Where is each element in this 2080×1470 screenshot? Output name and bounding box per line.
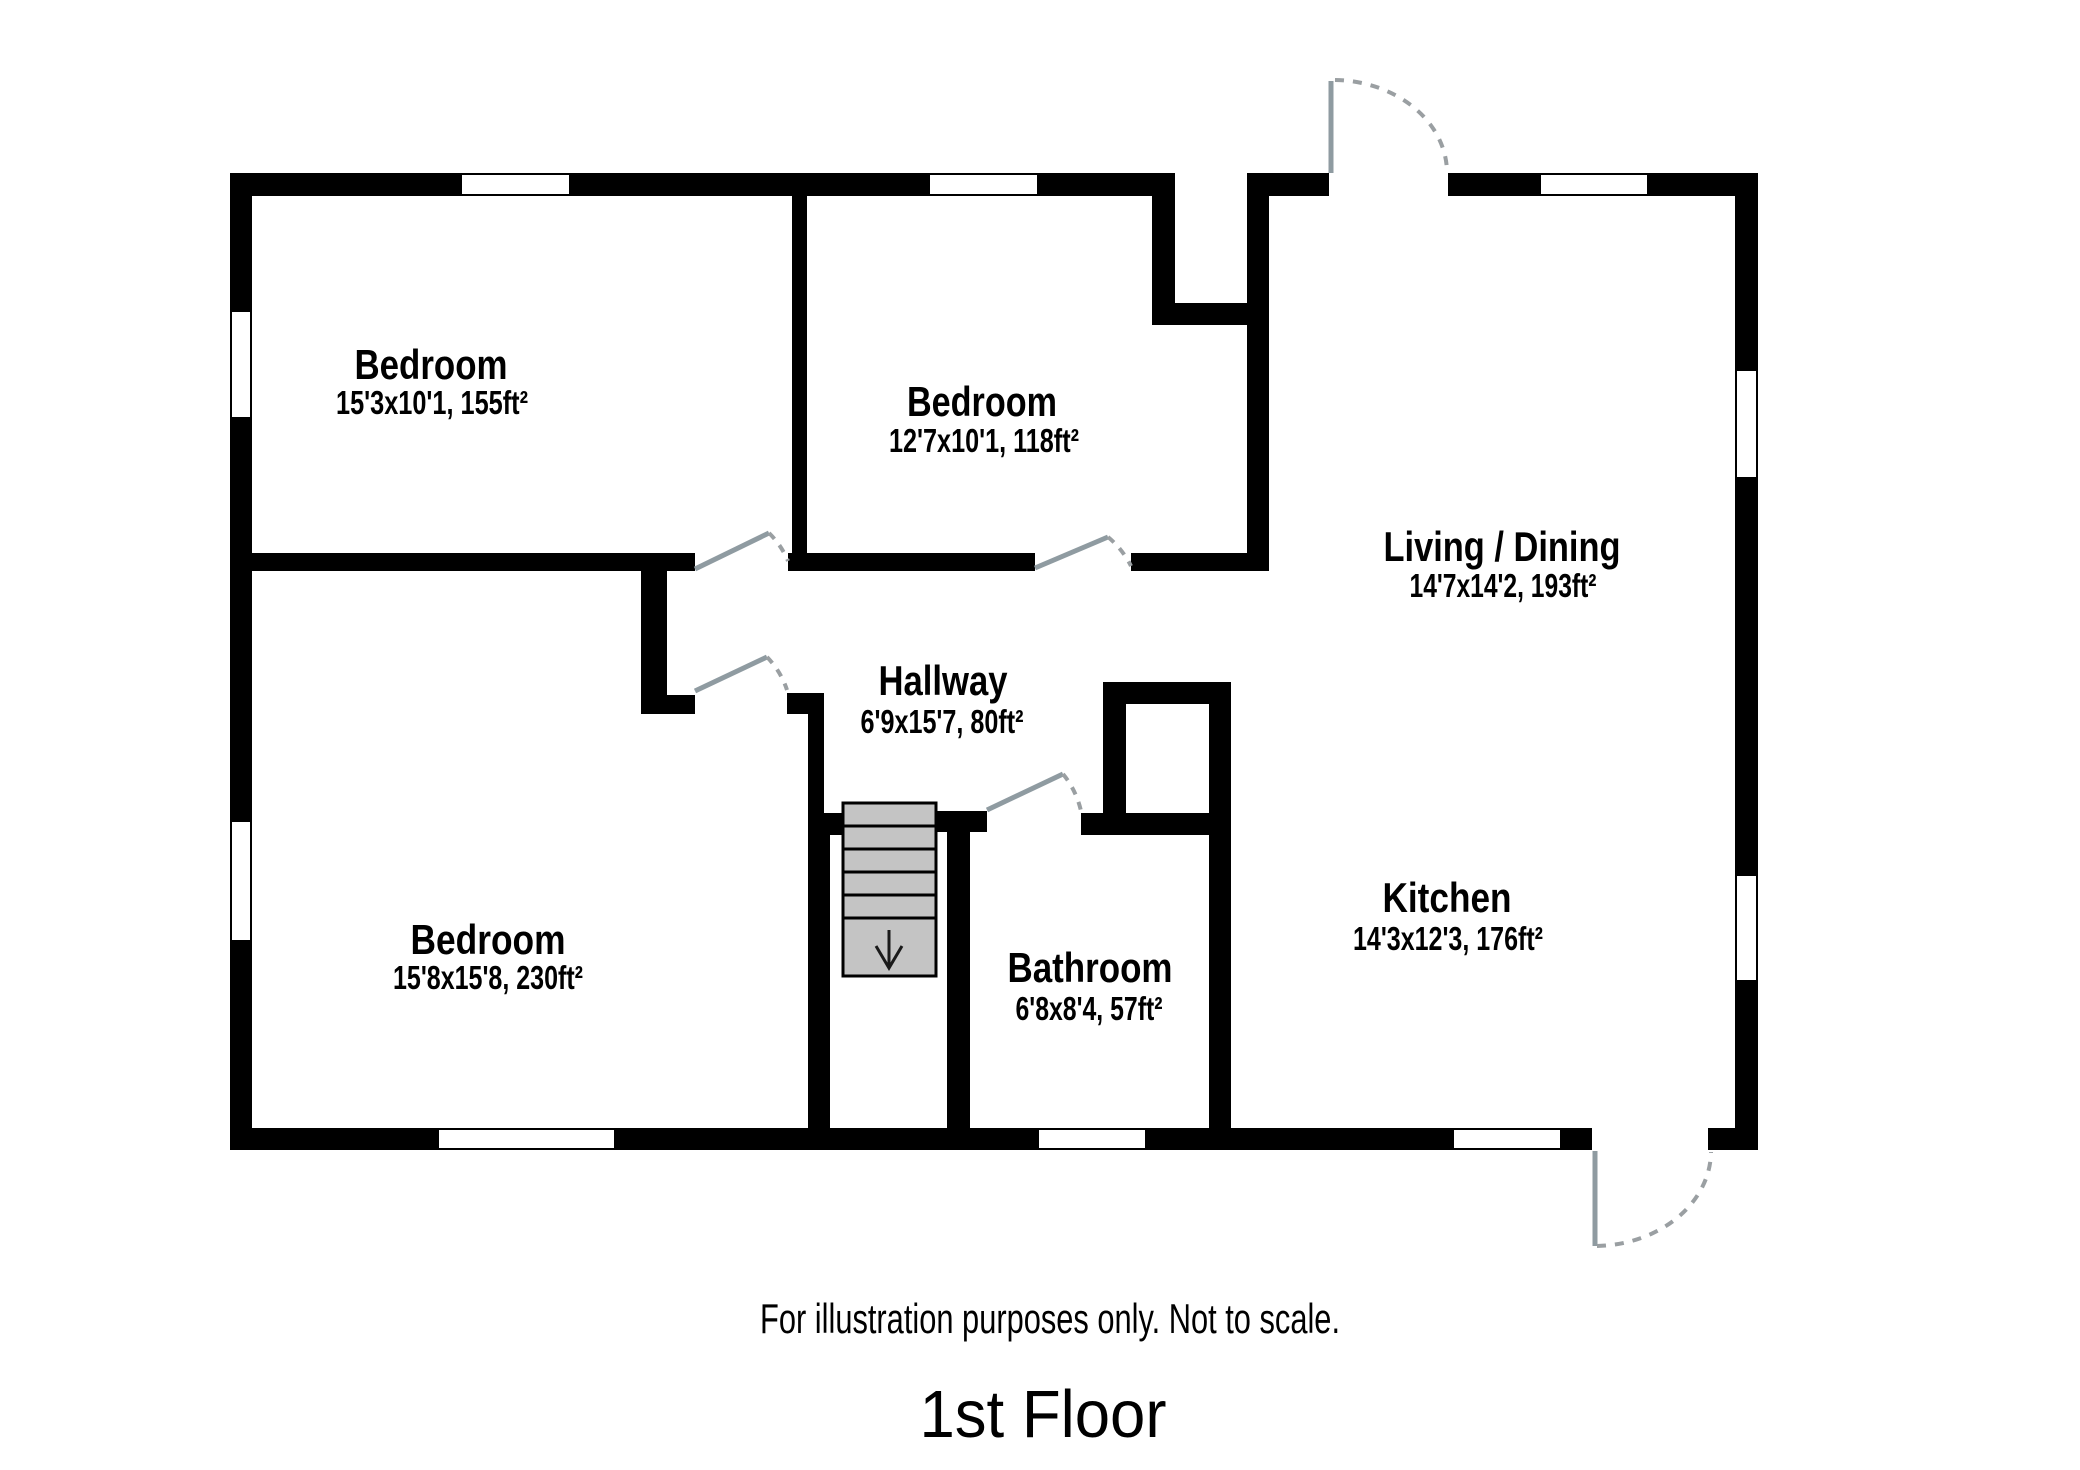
svg-text:6'9x15'7, 80ft²: 6'9x15'7, 80ft² (861, 703, 1024, 740)
svg-text:12'7x10'1, 118ft²: 12'7x10'1, 118ft² (889, 422, 1079, 459)
svg-text:15'3x10'1, 155ft²: 15'3x10'1, 155ft² (336, 384, 528, 421)
svg-text:Hallway: Hallway (879, 657, 1009, 704)
svg-text:Kitchen: Kitchen (1383, 874, 1512, 921)
svg-text:Living / Dining: Living / Dining (1384, 523, 1621, 570)
svg-text:Bedroom: Bedroom (411, 916, 566, 963)
svg-text:Bathroom: Bathroom (1008, 944, 1173, 991)
svg-text:Bedroom: Bedroom (907, 378, 1057, 425)
svg-text:15'8x15'8, 230ft²: 15'8x15'8, 230ft² (393, 959, 583, 996)
svg-text:For illustration purposes only: For illustration purposes only. Not to s… (760, 1295, 1340, 1342)
svg-text:14'3x12'3, 176ft²: 14'3x12'3, 176ft² (1353, 920, 1543, 957)
svg-text:Bedroom: Bedroom (355, 341, 508, 388)
svg-text:14'7x14'2, 193ft²: 14'7x14'2, 193ft² (1410, 567, 1597, 604)
svg-text:1st Floor: 1st Floor (920, 1377, 1167, 1452)
svg-text:6'8x8'4, 57ft²: 6'8x8'4, 57ft² (1016, 990, 1163, 1027)
